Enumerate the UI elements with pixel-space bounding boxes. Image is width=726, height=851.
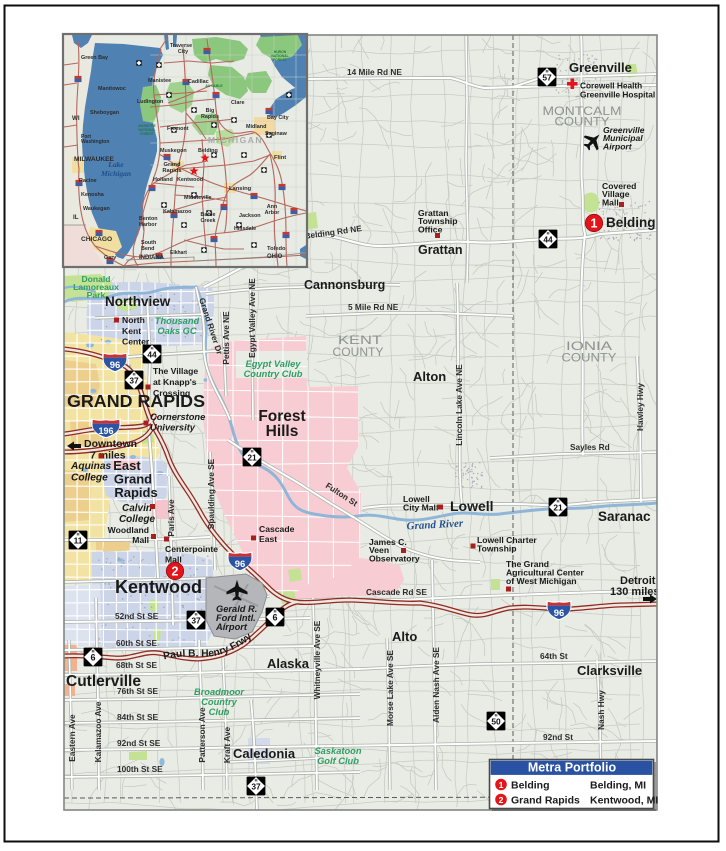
svg-text:37: 37: [129, 375, 139, 385]
svg-text:44: 44: [147, 349, 157, 359]
svg-text:1: 1: [499, 780, 504, 790]
svg-text:Airport: Airport: [215, 622, 248, 632]
svg-text:MICHIGAN: MICHIGAN: [208, 135, 263, 145]
svg-text:Flint: Flint: [274, 155, 286, 161]
svg-text:Office: Office: [418, 224, 443, 234]
svg-text:CHICAGO: CHICAGO: [81, 236, 112, 243]
svg-text:Fremont: Fremont: [167, 126, 189, 132]
svg-text:Calvin: Calvin: [122, 503, 152, 514]
svg-text:COUNTY: COUNTY: [562, 353, 617, 365]
svg-text:92nd St: 92nd St: [543, 732, 573, 742]
svg-text:Lansing: Lansing: [229, 186, 252, 192]
svg-text:Belding: Belding: [511, 780, 550, 792]
svg-text:INDIANA: INDIANA: [139, 255, 165, 261]
svg-text:92nd St SE: 92nd St SE: [117, 738, 161, 748]
svg-text:Kalamazoo: Kalamazoo: [163, 209, 192, 215]
svg-text:64th St: 64th St: [540, 651, 568, 661]
svg-text:5 Mile Rd NE: 5 Mile Rd NE: [348, 302, 399, 312]
svg-text:Manistee: Manistee: [148, 78, 171, 84]
svg-text:37: 37: [191, 615, 201, 625]
svg-text:Golf Club: Golf Club: [317, 756, 359, 766]
svg-text:Morse Lake Ave SE: Morse Lake Ave SE: [385, 650, 395, 726]
svg-text:Downtown: Downtown: [84, 438, 137, 450]
svg-text:Township: Township: [477, 544, 516, 554]
svg-text:Mall: Mall: [602, 197, 619, 207]
svg-text:College: College: [71, 473, 108, 484]
svg-text:City Mall: City Mall: [403, 503, 438, 513]
svg-text:60th St SE: 60th St SE: [116, 638, 158, 648]
svg-text:Whitneyville Ave SE: Whitneyville Ave SE: [312, 620, 322, 699]
svg-text:City: City: [178, 49, 188, 55]
svg-text:Oaks GC: Oaks GC: [157, 326, 197, 336]
svg-text:Sheboygan: Sheboygan: [90, 110, 119, 116]
svg-text:Clarksville: Clarksville: [577, 663, 642, 678]
svg-text:Metra Portfolio: Metra Portfolio: [528, 761, 617, 775]
svg-text:Ludington: Ludington: [137, 99, 163, 105]
svg-text:Country: Country: [201, 697, 237, 707]
svg-text:Alaska: Alaska: [267, 656, 310, 671]
svg-text:11: 11: [74, 535, 83, 545]
svg-text:Alton: Alton: [413, 369, 446, 384]
svg-text:Cannonsburg: Cannonsburg: [304, 278, 385, 292]
svg-text:Belding, MI: Belding, MI: [590, 780, 646, 792]
svg-text:Nash Hwy: Nash Hwy: [596, 690, 606, 730]
svg-text:Kentwood: Kentwood: [115, 577, 202, 597]
svg-text:Patterson Ave: Patterson Ave: [197, 707, 207, 763]
svg-text:Waukegan: Waukegan: [83, 206, 110, 212]
svg-text:Harbor: Harbor: [139, 222, 158, 228]
svg-text:Gary: Gary: [104, 255, 116, 261]
svg-text:Toledo: Toledo: [267, 246, 286, 252]
svg-text:Midland: Midland: [246, 124, 266, 130]
svg-text:The Village: The Village: [153, 366, 198, 376]
svg-text:WI: WI: [72, 115, 80, 122]
svg-text:Pettis Ave NE: Pettis Ave NE: [221, 311, 231, 365]
svg-text:76th St SE: 76th St SE: [117, 686, 159, 696]
svg-text:Michigan: Michigan: [100, 169, 131, 178]
svg-text:Racine: Racine: [79, 178, 97, 184]
svg-text:2: 2: [172, 564, 179, 578]
svg-text:Eastern Ave: Eastern Ave: [67, 714, 77, 762]
svg-text:Washington: Washington: [81, 139, 109, 145]
svg-text:Woodland: Woodland: [108, 525, 149, 535]
svg-text:Alden Nash Ave SE: Alden Nash Ave SE: [431, 647, 441, 723]
svg-text:50: 50: [491, 716, 501, 726]
svg-text:University: University: [150, 423, 196, 433]
svg-text:Hawley Hwy: Hawley Hwy: [635, 383, 645, 431]
svg-text:Saranac: Saranac: [598, 509, 651, 524]
svg-text:Kentwood, MI: Kentwood, MI: [590, 795, 658, 807]
svg-text:Kenosha: Kenosha: [81, 192, 105, 198]
svg-text:68th St SE: 68th St SE: [116, 660, 158, 670]
svg-text:Grand Rapids: Grand Rapids: [511, 795, 580, 807]
svg-text:Kalamazoo Ave: Kalamazoo Ave: [93, 701, 103, 762]
svg-text:Greenville: Greenville: [569, 60, 632, 75]
svg-text:Jackson: Jackson: [239, 213, 261, 219]
svg-text:37: 37: [251, 781, 261, 791]
svg-text:7 miles: 7 miles: [90, 450, 126, 462]
svg-text:Creek: Creek: [201, 218, 216, 224]
svg-text:Grattan: Grattan: [418, 243, 462, 257]
svg-text:Northview: Northview: [105, 294, 171, 309]
svg-text:Paris Ave: Paris Ave: [166, 499, 176, 537]
svg-text:Saskatoon: Saskatoon: [314, 746, 361, 756]
svg-text:COUNTY: COUNTY: [555, 117, 610, 129]
svg-text:Greenville Hospital: Greenville Hospital: [580, 89, 655, 99]
svg-text:Rapids: Rapids: [114, 485, 157, 500]
svg-text:College: College: [119, 514, 156, 525]
svg-text:Clare: Clare: [231, 100, 245, 106]
svg-text:Holland: Holland: [153, 177, 173, 183]
svg-text:North: North: [122, 315, 145, 325]
svg-text:96: 96: [554, 608, 565, 619]
svg-text:Hills: Hills: [266, 423, 299, 440]
svg-text:KENT: KENT: [338, 335, 382, 347]
svg-text:Thousand: Thousand: [155, 316, 200, 326]
svg-text:Centerpointe: Centerpointe: [165, 544, 218, 554]
svg-text:Muskegon: Muskegon: [160, 148, 187, 154]
svg-text:of West Michigan: of West Michigan: [506, 576, 577, 586]
svg-text:21: 21: [247, 452, 257, 462]
svg-text:OHIO: OHIO: [267, 254, 283, 260]
svg-text:Observatory: Observatory: [369, 553, 420, 563]
svg-text:44: 44: [543, 234, 553, 244]
svg-text:Middleville: Middleville: [184, 195, 212, 201]
svg-text:Lowell: Lowell: [450, 498, 494, 514]
svg-text:Elkhart: Elkhart: [170, 250, 187, 256]
svg-text:at Knapp's: at Knapp's: [153, 377, 197, 387]
svg-text:96: 96: [235, 559, 246, 570]
svg-text:Hillsdale: Hillsdale: [234, 226, 256, 232]
svg-text:IL: IL: [73, 214, 79, 221]
svg-text:196: 196: [98, 426, 113, 436]
svg-text:Egypt Valley: Egypt Valley: [246, 359, 302, 369]
svg-text:Sayles Rd: Sayles Rd: [570, 442, 610, 452]
svg-text:Cornerstone: Cornerstone: [150, 412, 205, 422]
svg-text:Lincoln Lake Ave NE: Lincoln Lake Ave NE: [454, 364, 464, 446]
svg-text:Airport: Airport: [602, 141, 633, 151]
svg-text:AU SABLE: AU SABLE: [205, 84, 223, 88]
svg-text:Park: Park: [87, 290, 106, 300]
svg-text:Aquinas: Aquinas: [70, 461, 112, 472]
svg-text:Kentwood: Kentwood: [177, 177, 203, 183]
svg-text:Arbor: Arbor: [265, 210, 281, 216]
svg-text:52nd St SE: 52nd St SE: [115, 611, 159, 621]
svg-text:FOREST: FOREST: [273, 58, 288, 62]
svg-text:Lake: Lake: [107, 160, 124, 169]
svg-text:Kraft Ave: Kraft Ave: [222, 726, 232, 763]
svg-text:21: 21: [553, 502, 563, 512]
svg-text:Rapids: Rapids: [162, 168, 181, 174]
svg-text:Egypt Valley Ave NE: Egypt Valley Ave NE: [247, 278, 257, 358]
svg-text:Caledonia: Caledonia: [233, 746, 296, 761]
svg-text:57: 57: [542, 72, 552, 82]
svg-text:COUNTY: COUNTY: [333, 347, 384, 359]
svg-text:6: 6: [90, 652, 95, 662]
svg-text:East: East: [259, 534, 277, 544]
svg-text:Spaulding Ave SE: Spaulding Ave SE: [206, 458, 216, 529]
svg-text:Rapids: Rapids: [201, 114, 219, 120]
svg-text:6: 6: [272, 612, 277, 622]
svg-text:Cascade: Cascade: [259, 524, 295, 534]
svg-text:Kent: Kent: [122, 326, 141, 336]
svg-text:Bend: Bend: [141, 246, 154, 252]
svg-text:IONIA: IONIA: [566, 341, 612, 353]
svg-text:Cascade Rd SE: Cascade Rd SE: [366, 587, 427, 597]
svg-text:100th St SE: 100th St SE: [117, 764, 163, 774]
svg-text:Belding: Belding: [198, 148, 218, 154]
svg-text:2: 2: [499, 795, 504, 805]
svg-text:Belding: Belding: [606, 215, 656, 230]
svg-text:Mall: Mall: [132, 535, 149, 545]
svg-text:Manitowoc: Manitowoc: [98, 86, 126, 92]
svg-text:FOREST: FOREST: [140, 132, 155, 136]
svg-text:Alto: Alto: [392, 629, 417, 644]
svg-text:Green Bay: Green Bay: [81, 55, 108, 61]
svg-text:1: 1: [591, 216, 598, 230]
svg-text:Crossing: Crossing: [153, 388, 190, 398]
svg-text:14 Mile Rd NE: 14 Mile Rd NE: [347, 67, 402, 77]
svg-text:Broadmoor: Broadmoor: [194, 687, 245, 697]
svg-text:Saginaw: Saginaw: [265, 131, 288, 137]
svg-text:Bay City: Bay City: [267, 115, 289, 121]
svg-text:84th St SE: 84th St SE: [117, 712, 159, 722]
svg-text:Country Club: Country Club: [244, 369, 303, 379]
svg-text:96: 96: [110, 360, 121, 371]
svg-text:Club: Club: [209, 707, 230, 717]
